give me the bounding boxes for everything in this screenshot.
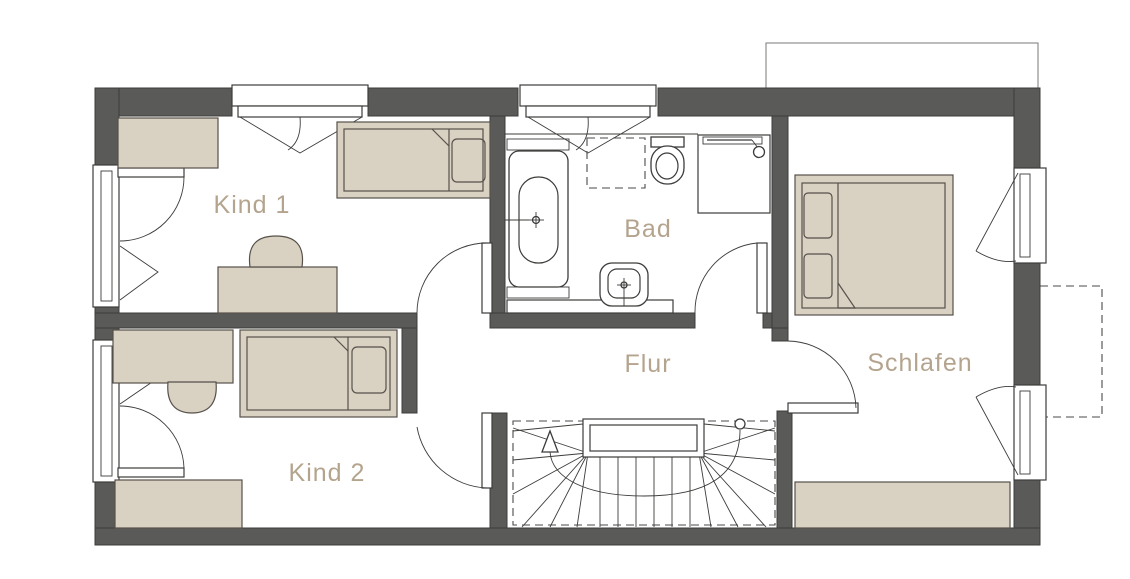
wall-left: [95, 88, 119, 165]
door-schlafen: [788, 341, 858, 413]
wall-top: [368, 88, 518, 116]
window-frame: [93, 165, 119, 307]
wall-top: [658, 88, 1040, 116]
single-bed: [240, 330, 397, 417]
window-swing-arc: [976, 251, 1016, 262]
window-frame: [232, 85, 368, 106]
room-label-flur: Flur: [624, 350, 671, 378]
room-label-bad: Bad: [624, 215, 671, 243]
desk: [113, 330, 233, 383]
shower-position-dashed: [587, 138, 645, 188]
door-kind2: [417, 413, 492, 488]
walk-line-start: [735, 419, 745, 429]
wall-schlafen-stairs: [777, 411, 792, 528]
double-bed: [795, 175, 953, 315]
window-schlafen-lower: [976, 385, 1046, 480]
dormer-outline: [766, 43, 1038, 89]
door-leaf: [482, 243, 492, 313]
room-label-kind2: Kind 2: [289, 459, 366, 487]
floor-plan-drawing: Kind 1 Bad Flur Schlafen Kind 2: [0, 0, 1130, 579]
window-leaf: [118, 168, 184, 177]
door-bad: [695, 243, 767, 313]
kind2-furniture: [113, 330, 397, 528]
chair: [168, 382, 217, 413]
wall-kind2-flur: [402, 328, 417, 413]
bed-frame: [337, 122, 490, 198]
wall-bad-schlafen: [772, 116, 788, 328]
door-swing-arc: [788, 341, 856, 408]
toilet: [651, 137, 684, 184]
chair: [249, 236, 302, 267]
window-swing-arc: [120, 177, 184, 241]
bathtub-shelf: [507, 287, 569, 298]
window-bad-top: [520, 85, 656, 153]
balcony-outline: [1040, 286, 1102, 417]
floor-plan-canvas: Kind 1 Bad Flur Schlafen Kind 2: [0, 0, 1130, 579]
wall-bad-flur: [490, 313, 695, 328]
door-leaf: [482, 413, 492, 488]
window-sill: [526, 106, 650, 117]
shower-head: [754, 147, 765, 158]
wardrobe: [795, 482, 1010, 528]
window-door-kind1-left: [93, 165, 184, 307]
window-schlafen-upper: [976, 168, 1046, 263]
window-swing: [528, 117, 650, 153]
window-leaf-open: [976, 397, 1018, 475]
tread: [513, 424, 583, 431]
door-swing-arc: [417, 427, 487, 488]
room-label-kind1: Kind 1: [214, 191, 291, 219]
wall-right: [1014, 88, 1040, 168]
window-leaf-open: [976, 173, 1018, 251]
wardrobe: [115, 480, 242, 528]
room-label-schlafen: Schlafen: [867, 349, 972, 377]
washbasin: [600, 263, 648, 306]
wall-kind1-kind2: [95, 313, 417, 328]
bathtub-shelf: [507, 139, 569, 150]
tread: [522, 453, 588, 527]
door-leaf: [788, 403, 858, 413]
window-sill: [238, 106, 362, 117]
kind1-furniture: [118, 118, 490, 313]
door-kind1: [417, 243, 492, 313]
desk: [218, 267, 337, 313]
window-swing-arc: [120, 406, 184, 468]
wardrobe: [118, 118, 218, 168]
wall-bottom: [95, 528, 1040, 545]
window-swing: [120, 246, 158, 300]
bed-frame: [240, 330, 397, 417]
walk-line-arrow-up: [542, 431, 558, 452]
staircase: [513, 419, 775, 527]
window-swing-arc: [576, 117, 588, 150]
window-swing-arc: [288, 117, 300, 150]
single-bed: [337, 122, 490, 198]
door-swing-arc: [417, 243, 487, 313]
bed-frame: [795, 175, 953, 315]
tread: [699, 428, 775, 453]
window-leaf: [118, 468, 184, 477]
wall-schlafen-stub: [772, 328, 788, 341]
wall-right: [1014, 263, 1040, 385]
vanity-counter: [507, 300, 673, 313]
door-swing-arc: [695, 243, 757, 313]
window-frame: [520, 85, 656, 106]
door-leaf: [757, 243, 767, 313]
window-swing-arc: [976, 386, 1016, 397]
shower: [698, 135, 770, 213]
